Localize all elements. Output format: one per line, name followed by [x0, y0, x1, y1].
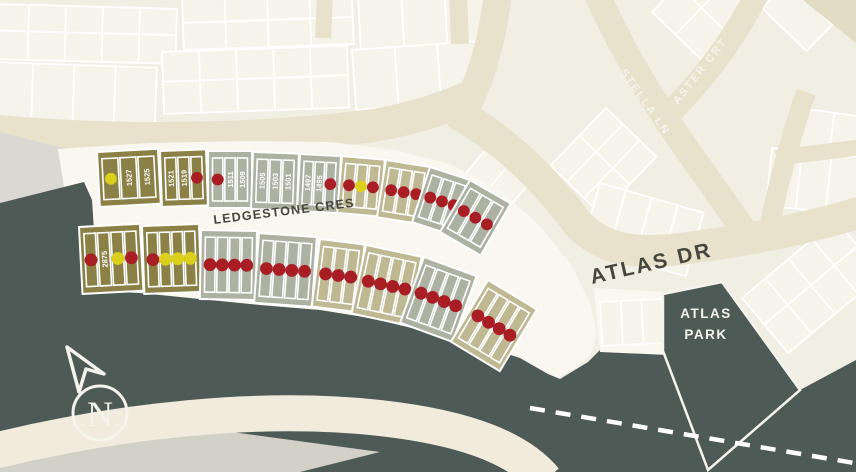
lot-number: 1521 [166, 170, 176, 187]
road-branch-east [776, 147, 856, 158]
lot-number: 1501 [283, 173, 293, 190]
lot-block: 15271525 [97, 149, 161, 207]
background-lot-strip [600, 299, 664, 346]
lot-number: 2875 [100, 251, 110, 268]
lot-number: 1511 [226, 171, 235, 187]
lot-block: 15211519 [160, 149, 208, 207]
site-plan-map: 1527152515211519151115091505150315011497… [0, 0, 856, 472]
lot-number: 1519 [179, 170, 189, 187]
street-stub [449, 0, 469, 44]
lot-number: 1525 [142, 168, 152, 185]
lot-number: 1527 [124, 169, 134, 186]
lot-block [142, 224, 201, 294]
atlas-park-label-line1: ATLAS [680, 306, 732, 321]
lot-block: 15111509 [208, 151, 252, 208]
lot-number: 1505 [258, 172, 268, 189]
pocket-lots [600, 299, 664, 346]
lot-number: 1503 [271, 173, 281, 190]
atlas-park-label-line2: PARK [684, 327, 727, 342]
red-status-dot [212, 174, 224, 186]
lot-block [254, 233, 317, 307]
background-lot-strip [162, 46, 349, 114]
lot-block [200, 230, 257, 300]
lot-block: 2875 [79, 224, 143, 294]
lot-number: 1509 [238, 171, 247, 188]
lot-block: 150515031501 [251, 152, 299, 211]
compass-n-letter: N [87, 394, 113, 434]
street-stub [315, 0, 333, 38]
background-lot-strip [0, 4, 177, 64]
lot-number: 1497 [303, 174, 313, 191]
lot-number: 1495 [314, 175, 324, 192]
